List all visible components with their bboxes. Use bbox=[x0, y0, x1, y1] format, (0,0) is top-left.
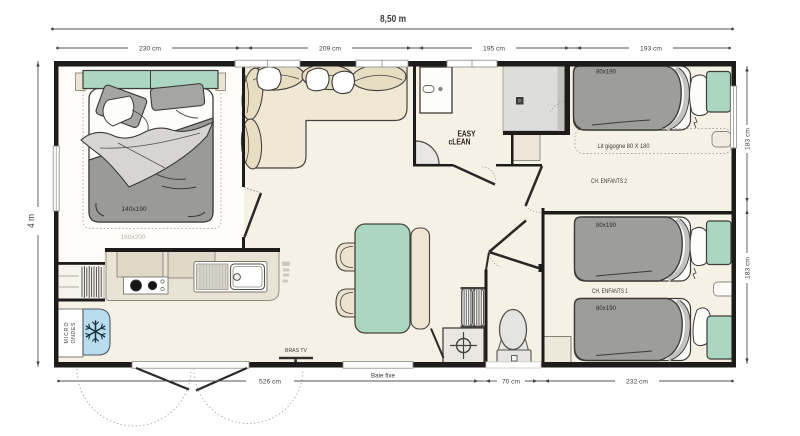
svg-text:80x190: 80x190 bbox=[596, 306, 617, 312]
svg-text:Baie fixe: Baie fixe bbox=[371, 373, 395, 380]
svg-text:232 cm: 232 cm bbox=[626, 379, 648, 386]
svg-text:183 cm: 183 cm bbox=[745, 128, 752, 150]
svg-text:209 cm: 209 cm bbox=[319, 46, 341, 53]
svg-text:Lit gigogne 80 X 180: Lit gigogne 80 X 180 bbox=[598, 143, 650, 150]
svg-text:140x190: 140x190 bbox=[122, 207, 148, 213]
svg-text:230 cm: 230 cm bbox=[139, 46, 161, 53]
svg-text:MICRO: MICRO bbox=[64, 323, 70, 344]
svg-text:195 cm: 195 cm bbox=[483, 46, 505, 53]
svg-text:BRAS TV: BRAS TV bbox=[285, 348, 307, 354]
svg-text:ONDES: ONDES bbox=[71, 322, 77, 344]
svg-text:80x190: 80x190 bbox=[596, 70, 617, 76]
svg-text:70 cm: 70 cm bbox=[502, 379, 520, 386]
svg-text:cLEAN: cLEAN bbox=[449, 137, 471, 147]
svg-text:183 cm: 183 cm bbox=[745, 257, 752, 279]
svg-text:CH. ENFANTS 1: CH. ENFANTS 1 bbox=[592, 289, 629, 295]
svg-text:193 cm: 193 cm bbox=[640, 46, 662, 53]
svg-text:160x200: 160x200 bbox=[121, 235, 147, 241]
svg-text:4 m: 4 m bbox=[26, 214, 36, 228]
svg-text:8,50 m: 8,50 m bbox=[380, 14, 406, 25]
svg-text:80x190: 80x190 bbox=[596, 223, 617, 229]
svg-text:526 cm: 526 cm bbox=[259, 379, 281, 386]
svg-text:CH. ENFANTS 2: CH. ENFANTS 2 bbox=[591, 179, 628, 185]
